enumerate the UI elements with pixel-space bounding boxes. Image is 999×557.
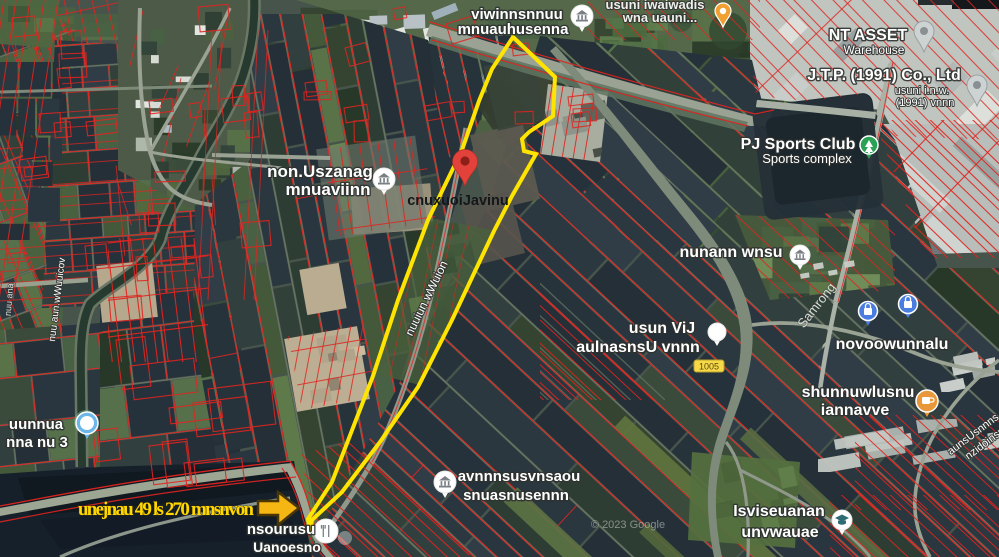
svg-text:Sports complex: Sports complex [762,151,852,166]
svg-text:iannavve: iannavve [821,402,890,419]
svg-text:Isviseuanan: Isviseuanan [733,503,825,520]
svg-text:(1991) vnnn: (1991) vnnn [896,97,955,109]
svg-text:uunnua: uunnua [9,416,64,433]
svg-text:novoowunnalu: novoowunnalu [836,336,949,353]
svg-text:usun ViJ: usun ViJ [629,320,695,337]
svg-text:J.T.P. (1991) Co., Ltd: J.T.P. (1991) Co., Ltd [807,67,961,84]
svg-text:wna uauni...: wna uauni... [622,10,697,25]
svg-text:cnuxuoiJavinu: cnuxuoiJavinu [407,193,509,209]
svg-text:mnuaviinn: mnuaviinn [285,180,370,199]
svg-text:NT ASSET: NT ASSET [829,27,908,44]
svg-text:shunnuwlusnu: shunnuwlusnu [802,384,915,401]
svg-text:Uanoesno: Uanoesno [253,539,321,555]
svg-text:unejnau 49 ls 270 mnsnvon: unejnau 49 ls 270 mnsnvon [78,499,254,520]
svg-text:nunann wnsu: nunann wnsu [679,244,782,261]
svg-text:avnnnsusvnsaou: avnnnsusvnsaou [458,468,581,485]
svg-text:mnuauhusenna: mnuauhusenna [458,21,570,38]
svg-text:snuasnusennn: snuasnusennn [463,487,569,504]
svg-text:1005: 1005 [699,362,719,372]
svg-text:usuni i.n.w.: usuni i.n.w. [895,85,949,97]
svg-text:non.Uszanag: non.Uszanag [267,162,373,181]
svg-text:nna nu 3: nna nu 3 [6,434,68,451]
svg-text:aulnasnsU vnnn: aulnasnsU vnnn [576,339,700,356]
svg-text:unvwauae: unvwauae [741,524,818,541]
svg-text:© 2023 Google: © 2023 Google [591,519,665,531]
svg-text:Warehouse: Warehouse [844,43,905,57]
